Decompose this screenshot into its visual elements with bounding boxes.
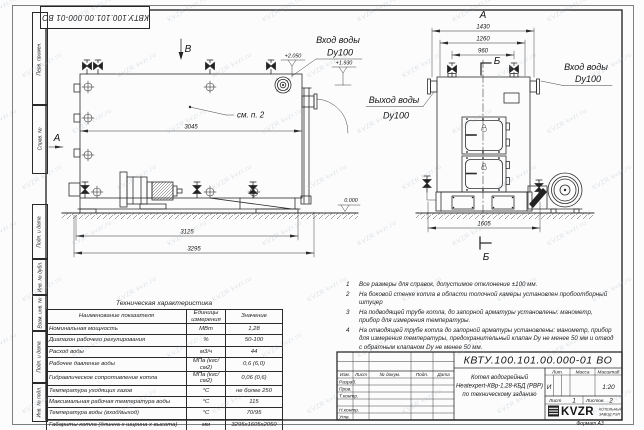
spec-name-cell: Рабочее давление воды	[47, 358, 187, 372]
logo-text: KVZR	[561, 406, 594, 418]
note-item: 4 На отводящей трубе котла до запорной а…	[346, 327, 614, 352]
inlet-nozzle-flange	[275, 77, 291, 93]
spec-name-cell: Номинальная мощность	[47, 324, 187, 335]
spec-name-cell: Температура уходящих газов	[47, 385, 187, 396]
spec-value-cell: 0,06 (0,6)	[226, 371, 283, 385]
spec-value-cell: 0,6 (6,0)	[226, 358, 283, 372]
lock-icon	[482, 163, 486, 170]
spec-unit-cell: %	[187, 335, 226, 346]
sheets-label: Листов	[585, 398, 604, 404]
spec-row: Температура уходящих газов°Сне более 250	[47, 385, 283, 396]
sheets-value: 2	[608, 397, 613, 404]
sig-utv: Утв.	[339, 415, 350, 421]
note-number: 3	[346, 309, 359, 326]
spec-header-unit: Единицы измерения	[187, 310, 226, 324]
logo-subtext-2: ЗАВОД РЭП	[599, 413, 620, 417]
spec-name-cell: Расход воды	[47, 346, 187, 357]
spec-unit-cell: МПа (кгс/см2)	[187, 371, 226, 385]
spec-name-cell: Диапазон рабочего регулирования	[47, 335, 187, 346]
dim-1605: 1605	[477, 222, 491, 228]
level-mark-2050: +2.050	[285, 54, 302, 60]
note-item: 2 На боковой стенке котла в области топо…	[346, 291, 614, 308]
spec-row: Габариты котла (длинна х ширина х высота…	[47, 419, 283, 430]
frame-cell-label: Перв. примен.	[37, 42, 43, 75]
spec-table-title: Техническая характеристика	[46, 300, 282, 307]
sig-prov: Пров.	[339, 387, 352, 393]
spec-name-cell: Максимальная рабочая температура воды	[47, 397, 187, 408]
blower-fan	[528, 173, 583, 213]
side-inlet-dn: Dy100	[575, 74, 601, 84]
drawing-name-line1: Котел водогрейный	[471, 374, 529, 381]
rev-header-dokum: № докум.	[380, 372, 401, 377]
side-view: А 1430 1260 960 Б	[366, 10, 612, 263]
lit-header: Лит.	[551, 369, 563, 374]
spec-row: Рабочее давление водыМПа (кгс/см2)0,6 (6…	[47, 358, 283, 372]
drawing-name-line3: по техническому заданию	[462, 392, 537, 398]
frame-cell-inv-dubl: Инв. № дубл.	[32, 258, 48, 296]
burner-assembly	[120, 172, 182, 209]
sig-nkontr: Н.контр.	[339, 408, 359, 414]
spec-unit-cell: °С	[187, 385, 226, 396]
frame-cell-label: Взам. инв. №	[37, 298, 43, 329]
view-arrow-a-label: А	[53, 133, 61, 144]
side-view-title: А	[479, 10, 487, 21]
spec-unit-cell: мм	[187, 419, 226, 430]
frame-cell-perv-primen: Перв. примен.	[32, 12, 48, 106]
corner-stamp-text: КВТУ.100.101.00.000-01 ВО	[42, 13, 149, 22]
kvzr-logo: KVZR КОТЕЛЬНЫЙ ЗАВОД РЭП	[548, 406, 623, 419]
lit-value: И	[547, 384, 552, 391]
note-item: 1 Все размеры для справок, допустимое от…	[346, 281, 614, 289]
spec-row: Гидравлическое сопротивление котлаМПа (к…	[47, 371, 283, 385]
view-arrow-b-label: В	[185, 44, 192, 55]
scale-header: Масштаб	[598, 369, 620, 374]
callout-see-note-2: см. п. 2	[237, 111, 265, 120]
spec-value-cell: 3295х1605х2050	[226, 419, 283, 430]
sheet-value: 1	[572, 397, 576, 404]
sheet-label: Лист	[548, 398, 561, 404]
spec-name-cell: Гидравлическое сопротивление котла	[47, 371, 187, 385]
sig-razrab: Разраб.	[339, 380, 356, 386]
lower-door	[462, 156, 510, 192]
spec-row: Номинальная мощностьМВт1,28	[47, 324, 283, 335]
note-number: 2	[346, 291, 359, 308]
spec-header-name: Наименование показателя	[47, 310, 187, 324]
spec-unit-cell: м3/ч	[187, 346, 226, 357]
drawing-sheet: 3045 3125 3295 В А см. п. 2	[0, 0, 644, 430]
dim-3045: 3045	[184, 125, 198, 131]
spec-header-row: Наименование показателя Единицы измерени…	[47, 310, 283, 324]
note-number: 1	[346, 281, 359, 289]
notes-list: 1 Все размеры для справок, допустимое от…	[346, 281, 614, 353]
spec-unit-cell: °С	[187, 397, 226, 408]
front-inlet-dn: Dy100	[327, 48, 353, 58]
spec-row: Температура воды (вход/выход)°С70/95	[47, 408, 283, 419]
front-inlet-label: Вход воды	[316, 35, 360, 45]
mass-header: Масса	[576, 369, 590, 374]
rev-header-list: Лист	[354, 372, 367, 377]
scale-value: 1:20	[602, 384, 615, 391]
spec-value-cell: 115	[226, 397, 283, 408]
side-inlet-label: Вход воды	[564, 62, 608, 72]
dim-3125: 3125	[180, 230, 194, 236]
frame-cell-label: Подп. и дата	[37, 216, 43, 247]
format-label: Формат А3	[576, 421, 604, 427]
spec-table: Техническая характеристика Наименование …	[46, 300, 282, 430]
front-view-dimensions: 3045 3125 3295	[74, 125, 314, 258]
level-mark-1930: +1.930	[336, 61, 353, 67]
spec-value-cell: 50-100	[226, 335, 283, 346]
note-text: На боковой стенке котла в области топочн…	[359, 291, 614, 308]
spec-name-cell: Температура воды (вход/выход)	[47, 408, 187, 419]
spec-unit-cell: МВт	[187, 324, 226, 335]
frame-cell-label: Подп. и дата	[37, 341, 43, 372]
section-b-top-label: Б	[494, 56, 501, 67]
frame-cell-label: Справ. №	[37, 128, 43, 151]
front-view-labels: В А см. п. 2 Вход воды Dy100 +2.050 +1.9…	[49, 35, 362, 212]
lock-icon	[482, 125, 486, 132]
rev-header-izm: Изм.	[340, 372, 350, 377]
spec-table-grid: Наименование показателя Единицы измерени…	[46, 309, 283, 430]
dim-1260: 1260	[476, 37, 490, 43]
logo-subtext-1: КОТЕЛЬНЫЙ	[599, 408, 623, 412]
spec-value-cell: 44	[226, 346, 283, 357]
note-text: На отводящей трубе котла до запорной арм…	[359, 327, 614, 352]
side-outlet-dn: Dy100	[383, 111, 409, 121]
level-mark-0000: 0.000	[344, 198, 358, 204]
note-number: 4	[346, 327, 359, 352]
spec-unit-cell: МПа (кгс/см2)	[187, 358, 226, 372]
spec-header-value: Значение	[226, 310, 283, 324]
sig-tkontr: Т.контр.	[339, 394, 358, 400]
frame-cell-podp-data-1: Подп. и дата	[32, 204, 48, 260]
spec-unit-cell: °С	[187, 408, 226, 419]
spec-name-cell: Габариты котла (длинна х ширина х высота…	[47, 419, 187, 430]
note-text: Все размеры для справок, допустимое откл…	[359, 281, 537, 289]
spec-value-cell: 70/95	[226, 408, 283, 419]
note-text: На подводящей трубе котла, до запорной а…	[359, 309, 614, 326]
frame-cell-sprav-no: Справ. №	[32, 104, 48, 174]
spec-value-cell: 1,28	[226, 324, 283, 335]
note-item: 3 На подводящей трубе котла, до запорной…	[346, 309, 614, 326]
section-b-bottom-label: Б	[483, 252, 490, 263]
dim-3295: 3295	[187, 247, 201, 253]
side-outlet-label: Выход воды	[369, 95, 420, 105]
upper-door	[462, 117, 510, 154]
spec-row: Диапазон рабочего регулирования%50-100	[47, 335, 283, 346]
title-block: КВТУ.100.101.00.000-01 ВО Котел водогрей…	[337, 352, 623, 421]
spec-value-cell: не более 250	[226, 385, 283, 396]
spec-row: Максимальная рабочая температура воды°С1…	[47, 397, 283, 408]
drawing-designation: КВТУ.100.101.00.000-01 ВО	[464, 355, 613, 367]
corner-stamp: КВТУ.100.101.00.000-01 ВО	[40, 6, 150, 29]
dim-960: 960	[478, 49, 489, 55]
frame-cell-label: Инв. № дубл.	[37, 262, 43, 293]
frame-cell-label: Инв. № подл.	[37, 386, 43, 417]
front-view	[62, 60, 358, 219]
rev-header-data: Дата	[436, 372, 450, 377]
spec-row: Расход водым3/ч44	[47, 346, 283, 357]
drawing-name-line2: Heatexpert-КВр-1,28-КБД (РВР)	[456, 384, 543, 390]
dim-1430: 1430	[476, 25, 490, 31]
rev-header-podp: Подп.	[416, 372, 428, 377]
